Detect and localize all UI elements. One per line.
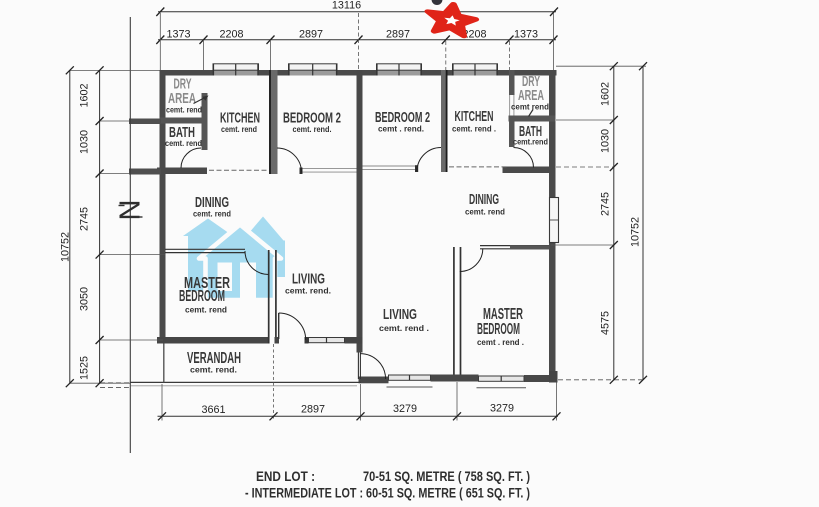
svg-text:cemt. rend .: cemt. rend . [379, 323, 429, 333]
svg-text:cemt. rend.: cemt. rend. [293, 124, 332, 134]
svg-text:cemt. rend: cemt. rend [185, 305, 227, 315]
svg-text:BEDROOM: BEDROOM [179, 288, 225, 305]
svg-text:LIVING: LIVING [383, 307, 417, 323]
svg-text:1030: 1030 [600, 129, 612, 153]
svg-text:3279: 3279 [393, 403, 417, 415]
svg-text:4575: 4575 [600, 311, 612, 335]
svg-text:2897: 2897 [301, 404, 325, 416]
svg-text:1373: 1373 [166, 29, 190, 41]
svg-text:2208: 2208 [219, 29, 243, 41]
svg-text:1373: 1373 [514, 29, 538, 41]
svg-text:BEDROOM: BEDROOM [477, 321, 520, 338]
svg-text:cemt. rend.: cemt. rend. [285, 286, 331, 296]
svg-text:cemt. rend: cemt. rend [193, 209, 231, 219]
svg-text:1525: 1525 [79, 356, 91, 380]
svg-text:2897: 2897 [299, 29, 323, 41]
svg-text:1602: 1602 [600, 82, 612, 106]
svg-text:1602: 1602 [79, 83, 91, 107]
svg-text:10752: 10752 [60, 232, 72, 262]
svg-text:10752: 10752 [630, 217, 642, 247]
svg-text:2745: 2745 [600, 192, 612, 216]
svg-text:cemt . rend .: cemt . rend . [477, 337, 524, 347]
svg-text:1030: 1030 [79, 130, 91, 154]
svg-text:3661: 3661 [201, 404, 225, 416]
svg-text:cemt rend: cemt rend [511, 102, 549, 112]
svg-text:3279: 3279 [490, 403, 514, 415]
svg-text:cemt . rend.: cemt . rend. [378, 124, 424, 134]
svg-text:13116: 13116 [332, 0, 361, 12]
svg-text:cemt. rend: cemt. rend [221, 124, 257, 134]
svg-text:70-51 SQ. METRE ( 758 SQ. FT.: 70-51 SQ. METRE ( 758 SQ. FT. ) [363, 469, 530, 484]
svg-text:cemt.rend: cemt.rend [513, 137, 548, 147]
svg-text:cemt. rend: cemt. rend [166, 105, 202, 115]
svg-text:2745: 2745 [79, 207, 91, 231]
svg-text:- INTERMEDIATE LOT : 60-51 SQ.: - INTERMEDIATE LOT : 60-51 SQ. METRE ( 6… [245, 486, 530, 501]
svg-text:2897: 2897 [386, 29, 410, 41]
svg-text:cemt. rend.: cemt. rend. [190, 365, 237, 375]
svg-text:cemt. rend: cemt. rend [165, 138, 202, 148]
svg-text:3050: 3050 [79, 287, 91, 311]
svg-text:cemt. rend: cemt. rend [465, 207, 505, 217]
svg-text:END LOT :: END LOT : [256, 469, 315, 484]
svg-text:cemt. rend .: cemt. rend . [452, 124, 496, 134]
